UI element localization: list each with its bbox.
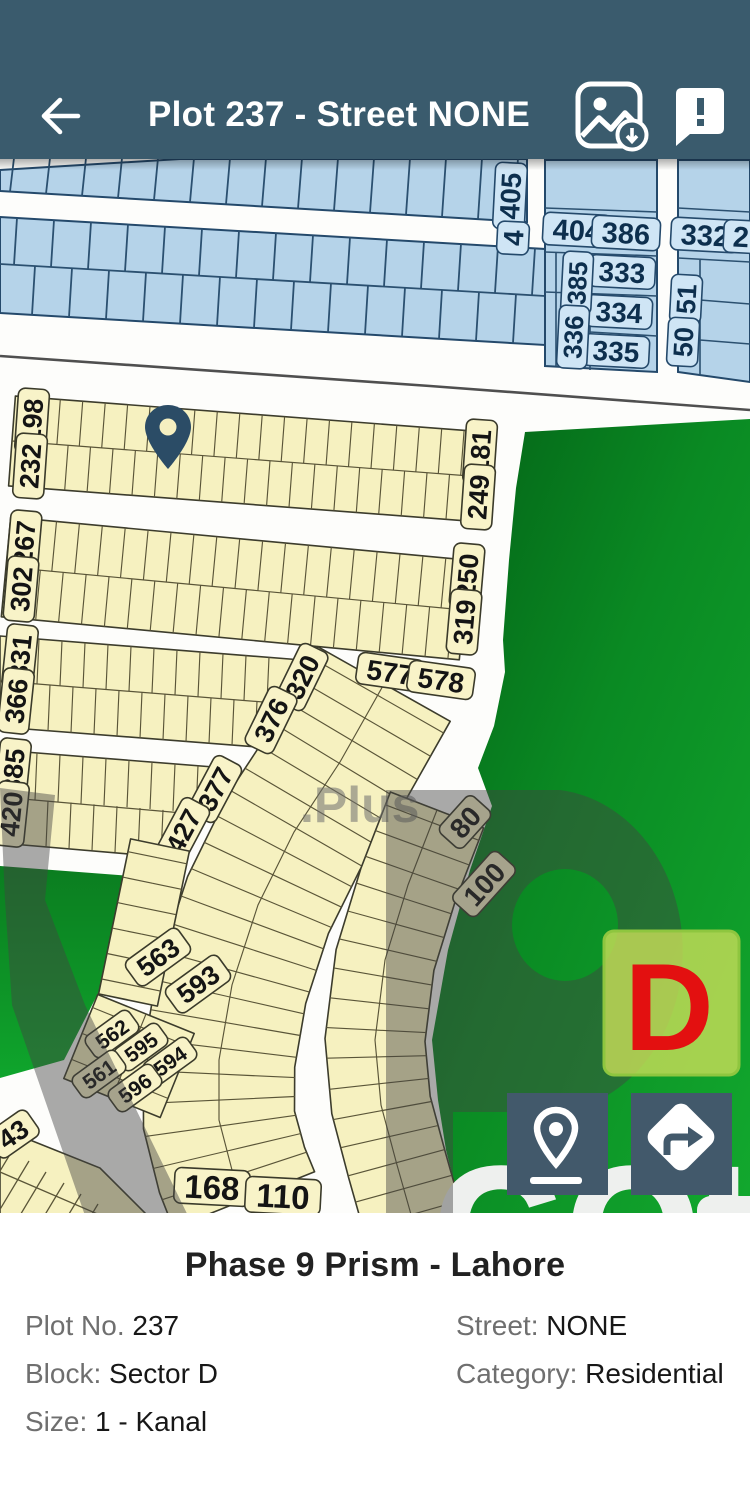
svg-text:D: D	[624, 939, 714, 1077]
svg-text:4: 4	[498, 229, 530, 247]
svg-text:51: 51	[671, 283, 703, 315]
svg-text:110: 110	[255, 1177, 310, 1213]
svg-text:386: 386	[601, 217, 651, 251]
svg-text:168: 168	[184, 1167, 241, 1207]
svg-text:249: 249	[462, 474, 495, 521]
svg-text:333: 333	[598, 256, 646, 289]
svg-text:50: 50	[668, 326, 700, 358]
svg-text:405: 405	[494, 172, 527, 220]
svg-text:578: 578	[416, 662, 467, 699]
svg-text:332: 332	[680, 219, 730, 253]
svg-text:319: 319	[448, 598, 482, 646]
svg-text:366: 366	[0, 677, 34, 725]
svg-text:29: 29	[732, 222, 750, 256]
svg-text:336: 336	[557, 315, 589, 360]
svg-text:385: 385	[561, 261, 593, 306]
svg-text:335: 335	[592, 335, 640, 368]
svg-text:334: 334	[595, 296, 644, 329]
svg-text:302: 302	[5, 565, 39, 613]
svg-text:232: 232	[14, 443, 47, 490]
